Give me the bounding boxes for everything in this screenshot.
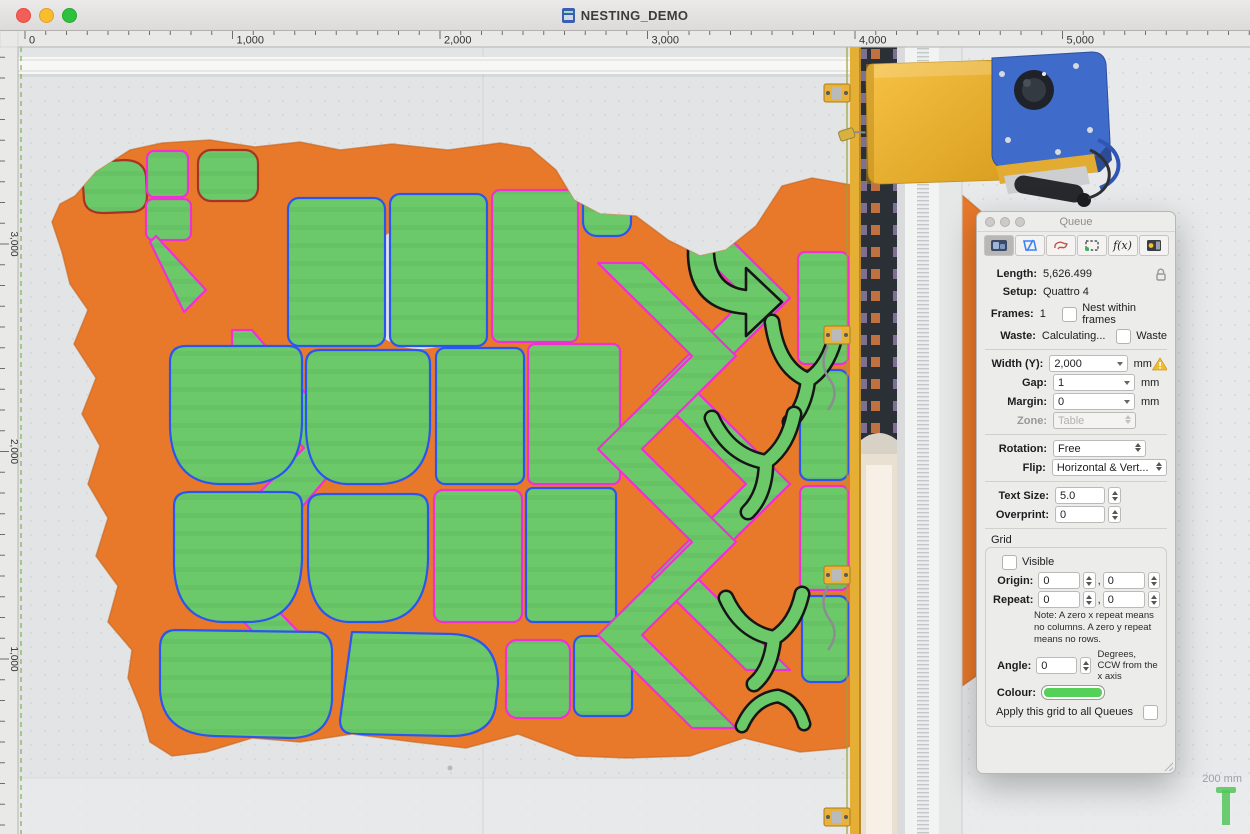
window-title: NESTING_DEMO [581, 8, 689, 23]
grid-visible-label: Visible [1022, 556, 1054, 568]
margin-row: Margin: 0 mm [985, 393, 1167, 410]
piece [340, 632, 498, 736]
overprint-field[interactable]: 0 [1055, 506, 1105, 523]
scale-overlay: 200 mm [1202, 773, 1242, 830]
piece-seat [170, 346, 302, 484]
grid-note: Note: A zero x repeat means no columns. … [1034, 610, 1162, 646]
ruler-top-label: 3,000 [652, 35, 680, 47]
piece [147, 151, 188, 197]
origin-x-stepper[interactable] [1083, 572, 1095, 589]
grid-group-box: Visible Origin: 0 , 0 Repeat: 0 , 0 Note… [985, 547, 1167, 727]
piece [390, 194, 487, 346]
length-row: Length: 5,626.499 [985, 266, 1167, 282]
ruler-top-label: 4,000 [859, 35, 887, 47]
window-titlebar: NESTING_DEMO [0, 0, 1250, 31]
flip-label: Flip: [985, 462, 1046, 474]
angle-row: Angle: 0 Degrees, CCW from the x axis [992, 649, 1160, 683]
width-unit: mm [1134, 358, 1152, 370]
panel-close-button[interactable] [985, 217, 995, 227]
panel-zoom-button[interactable] [1015, 217, 1025, 227]
chevron-up-icon [1156, 462, 1162, 466]
text-size-stepper[interactable] [1108, 487, 1121, 504]
warning-icon [1152, 357, 1167, 371]
angle-label: Angle: [992, 660, 1031, 672]
flip-popup[interactable]: Horizontal & Vert... [1052, 459, 1167, 476]
apply-grid-row: Apply this grid to all Queues [996, 705, 1158, 720]
rotation-row: Rotation: Free [985, 440, 1167, 457]
apply-grid-label: Apply this grid to all Queues [996, 706, 1133, 718]
ruler-left-label: 1,000 [8, 646, 19, 671]
waste-checkbox-label: Waste [1136, 330, 1167, 342]
piece [160, 630, 332, 738]
frames-row: Frames: 1 Nest within frames [985, 302, 1167, 326]
apply-grid-checkbox[interactable] [1143, 705, 1158, 720]
gap-unit: mm [1141, 377, 1159, 389]
piece [526, 488, 616, 622]
divider [985, 349, 1167, 350]
ruler-top-label: 2,000 [444, 35, 472, 47]
queue-panel-titlebar[interactable]: Queue [977, 212, 1175, 232]
width-label: Width (Y): [985, 358, 1043, 370]
origin-label: Origin: [992, 575, 1033, 587]
grid-visible-checkbox[interactable] [1002, 555, 1017, 570]
comma-separator: , [1098, 594, 1101, 606]
top-rail [18, 57, 856, 77]
angle-hint: Degrees, CCW from the x axis [1097, 649, 1160, 683]
piece-seat [174, 492, 302, 622]
ruler-top-label: 5,000 [1067, 35, 1095, 47]
frames-label: Frames: [985, 308, 1034, 320]
waste-label: Waste: [985, 330, 1036, 342]
queue-toolbar: f(x) [977, 232, 1175, 260]
piece [436, 348, 524, 484]
chevron-down-icon [1135, 448, 1141, 452]
repeat-x-field[interactable]: 0 [1038, 591, 1080, 608]
nest-within-frames-label: Nest within frames [1082, 302, 1167, 326]
margin-combo[interactable]: 0 [1053, 393, 1135, 410]
nest-tool[interactable] [984, 235, 1014, 256]
zone-label: Zone: [985, 415, 1047, 427]
ruler-left-label: 3,000 [8, 231, 19, 256]
piece [492, 190, 578, 342]
visible-row: Visible [992, 554, 1160, 570]
piece-seat [306, 350, 430, 484]
close-button[interactable] [16, 8, 31, 23]
ruler-left-label: 2,000 [8, 439, 19, 464]
zone-popup: Table [1053, 412, 1136, 429]
function-tool-glyph: f(x) [1113, 239, 1132, 252]
chevron-up-icon [1135, 443, 1141, 447]
panel-window-buttons[interactable] [985, 217, 1025, 227]
ruler-top-label: 1,000 [237, 35, 265, 47]
chevron-up-icon [1125, 415, 1131, 419]
length-label: Length: [985, 268, 1037, 280]
setup-row: Setup: Quattro 4 [985, 284, 1167, 300]
function-tool[interactable]: f(x) [1108, 235, 1138, 256]
grid-colour-swatch[interactable] [1041, 685, 1105, 700]
overprint-row: Overprint: 0 [985, 506, 1167, 523]
piece [146, 199, 191, 240]
colour-label: Colour: [992, 687, 1036, 699]
zone-row: Zone: Table [985, 412, 1167, 429]
repeat-y-stepper[interactable] [1148, 591, 1160, 608]
panel-resize-grip[interactable] [1164, 762, 1173, 771]
document-icon [562, 8, 575, 23]
overprint-stepper[interactable] [1108, 506, 1121, 523]
angle-field[interactable]: 0 [1036, 657, 1076, 674]
piece [288, 198, 385, 346]
overprint-label: Overprint: [985, 509, 1049, 521]
piece [434, 490, 522, 622]
colour-row: Colour: [992, 685, 1160, 701]
gap-combo[interactable]: 1 [1053, 374, 1135, 391]
ruler-top: 01,0002,0003,0004,0005,000 [0, 30, 1250, 47]
length-value: 5,626.499 [1043, 268, 1092, 280]
margin-unit: mm [1141, 396, 1159, 408]
minimize-button[interactable] [39, 8, 54, 23]
scale-ruler-icon [1216, 787, 1236, 825]
width-row: Width (Y): 2,000 mm [985, 355, 1167, 372]
scale-text: 200 mm [1202, 773, 1242, 785]
ruler-corner [0, 30, 18, 47]
divider [985, 434, 1167, 435]
chevron-down-icon [1117, 362, 1123, 366]
repeat-row: Repeat: 0 , 0 [992, 591, 1160, 608]
marquee-tool[interactable] [1077, 235, 1107, 256]
repeat-x-stepper[interactable] [1083, 591, 1095, 608]
chevron-down-icon [1124, 381, 1130, 385]
lasso-tool[interactable] [1046, 235, 1076, 256]
width-combo[interactable]: 2,000 [1049, 355, 1127, 372]
grid-section-title: Grid [991, 534, 1169, 546]
piece [528, 344, 620, 484]
comma-separator: , [1098, 575, 1101, 587]
repeat-y-field[interactable]: 0 [1103, 591, 1145, 608]
angle-stepper[interactable] [1080, 657, 1092, 674]
gap-label: Gap: [985, 377, 1047, 389]
waste-row: Waste: Calculating... Waste [985, 328, 1167, 344]
unlock-icon[interactable] [1155, 268, 1167, 281]
text-size-row: Text Size: 5.0 [985, 487, 1167, 504]
gap-row: Gap: 1 mm [985, 374, 1167, 391]
piece-seat [308, 494, 428, 622]
chevron-down-icon [1125, 420, 1131, 424]
origin-x-field[interactable]: 0 [1038, 572, 1080, 589]
chevron-down-icon [1124, 400, 1130, 404]
origin-y-field[interactable]: 0 [1103, 572, 1145, 589]
queue-pieces-tool[interactable] [1015, 235, 1045, 256]
origin-row: Origin: 0 , 0 [992, 572, 1160, 589]
repeat-label: Repeat: [992, 594, 1033, 606]
frames-value: 1 [1040, 308, 1062, 320]
chevron-down-icon [1156, 467, 1162, 471]
waste-value: Calculating... [1042, 330, 1116, 342]
traffic-lights [16, 8, 77, 23]
flip-row: Flip: Horizontal & Vert... [985, 459, 1167, 476]
origin-y-stepper[interactable] [1148, 572, 1160, 589]
setup-value: Quattro 4 [1043, 286, 1089, 298]
text-size-label: Text Size: [985, 490, 1049, 502]
text-size-field[interactable]: 5.0 [1055, 487, 1105, 504]
divider [985, 481, 1167, 482]
margin-label: Margin: [985, 396, 1047, 408]
machine-output-tool[interactable] [1139, 235, 1169, 256]
divider [985, 528, 1167, 529]
ruler-left: 3,0002,0001,000 [0, 47, 19, 834]
waste-checkbox[interactable] [1116, 329, 1131, 344]
zoom-button[interactable] [62, 8, 77, 23]
piece [506, 640, 570, 718]
panel-minimize-button[interactable] [1000, 217, 1010, 227]
nest-within-frames-checkbox[interactable] [1062, 307, 1077, 322]
setup-label: Setup: [985, 286, 1037, 298]
rotation-popup[interactable]: Free [1053, 440, 1146, 457]
piece [198, 150, 258, 201]
queue-panel: Queue f(x) Length: 5,626.499 Setup: [976, 211, 1176, 774]
ruler-top-label: 0 [29, 35, 35, 47]
rotation-label: Rotation: [985, 443, 1047, 455]
